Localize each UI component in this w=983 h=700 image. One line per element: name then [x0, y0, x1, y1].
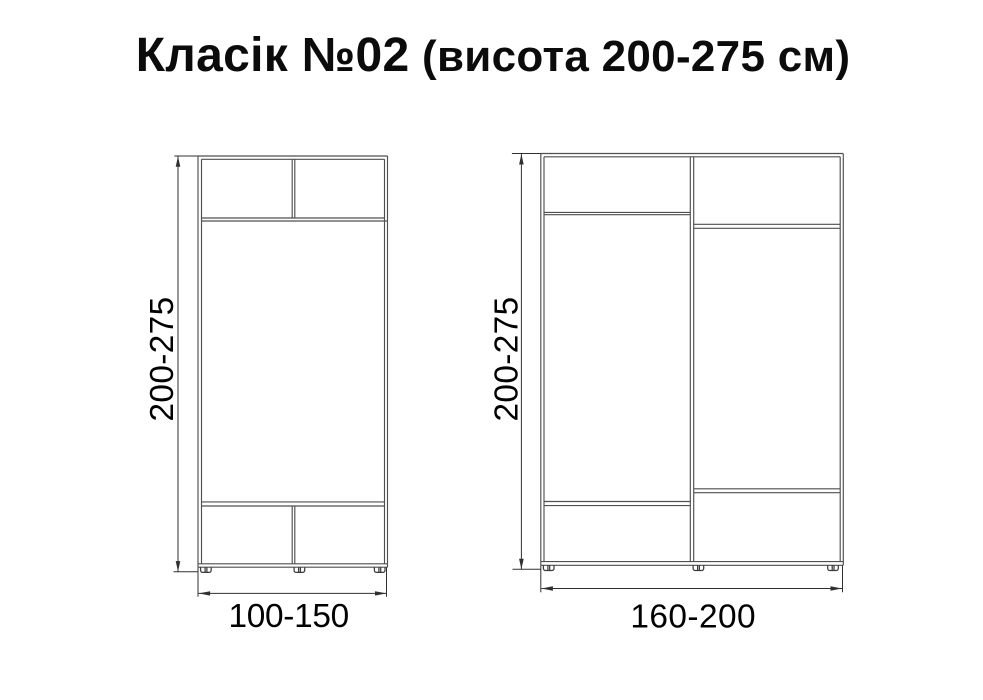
- svg-text:100-150: 100-150: [228, 598, 348, 635]
- svg-text:Класік №02 (висота 200-275 см): Класік №02 (висота 200-275 см): [136, 29, 851, 82]
- svg-text:200-275: 200-275: [489, 297, 526, 422]
- svg-text:160-200: 160-200: [630, 598, 756, 635]
- svg-text:200-275: 200-275: [144, 297, 181, 422]
